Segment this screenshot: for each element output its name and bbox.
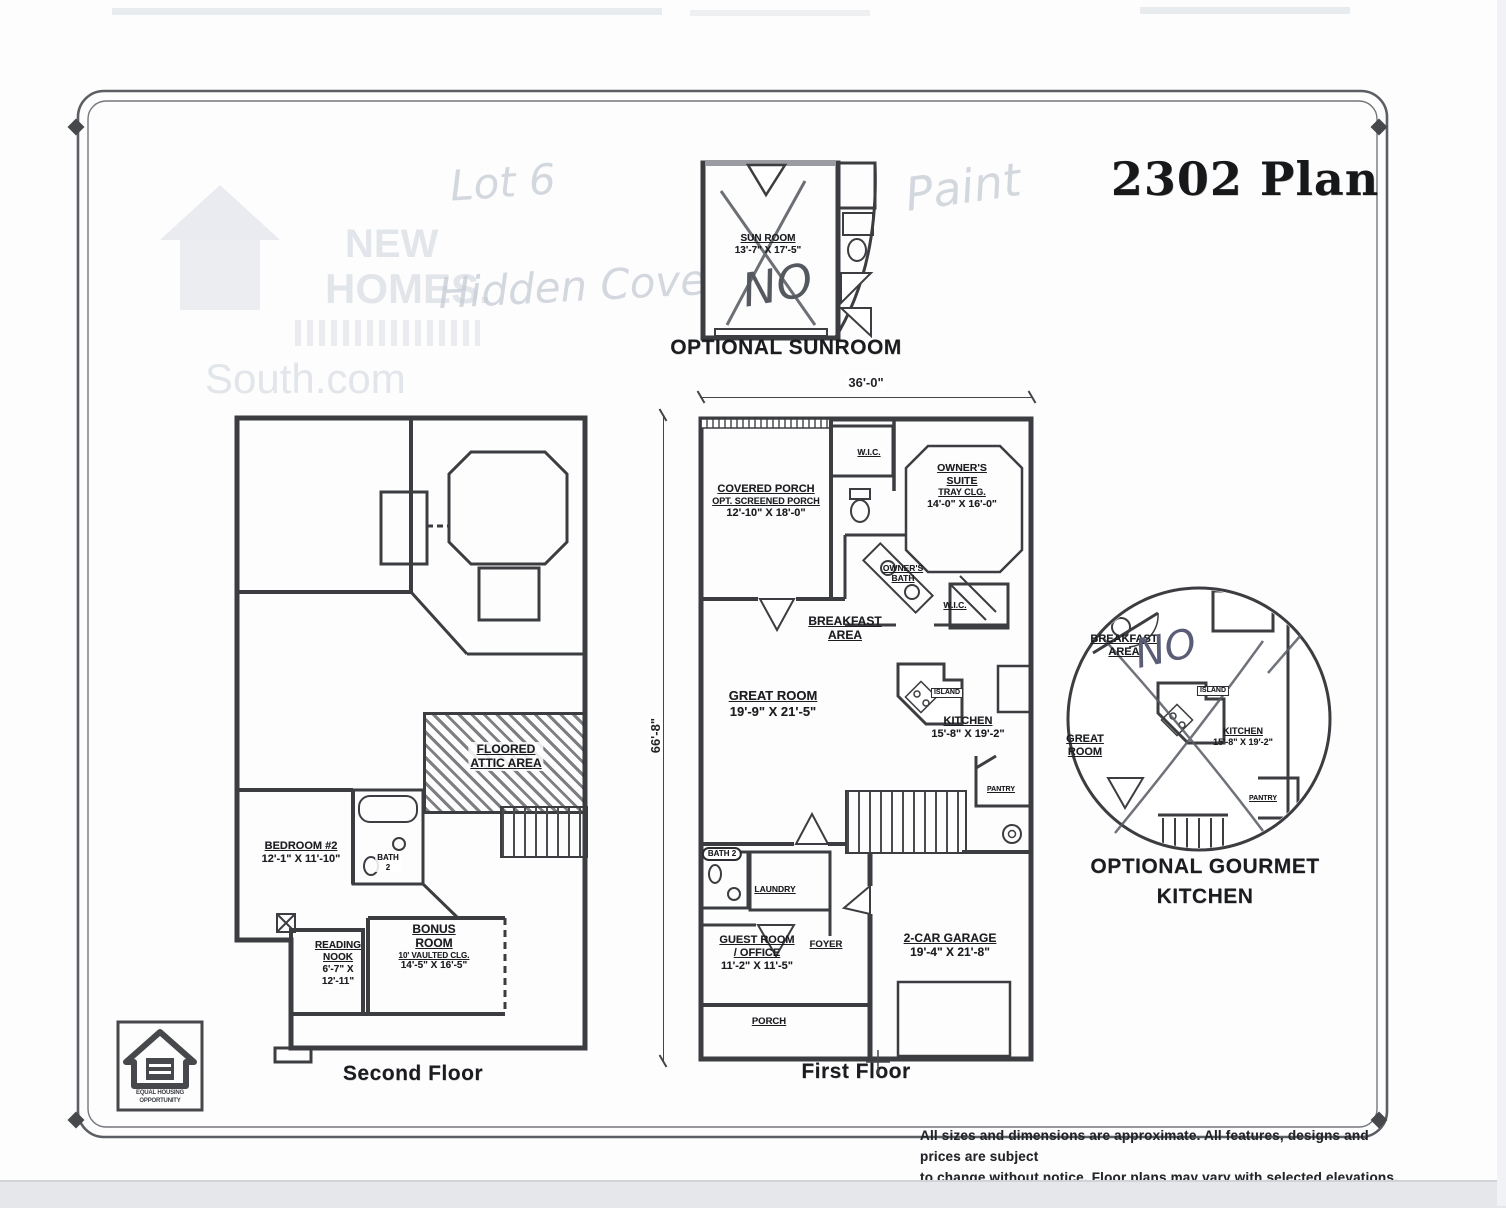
room-label-gk-kitchen: KITCHEN 15'-8" X 19'-2" — [1213, 726, 1273, 748]
dimension-line-height — [663, 416, 664, 1062]
door-swing-icon — [796, 814, 828, 844]
room-label-gk-great-room: GREAT ROOM — [1066, 733, 1104, 759]
room-label-garage: 2-CAR GARAGE 19'-4" X 21'-8" — [904, 931, 997, 960]
room-label-great-room: GREAT ROOM 19'-9" X 21'-5" — [729, 688, 818, 719]
caption-first-floor: First Floor — [801, 1060, 910, 1084]
room-label-reading-nook: READING NOOK 6'-7" X 12'-11" — [315, 940, 361, 988]
handwritten-lot-number: Lot 6 — [448, 154, 557, 210]
room-label-pantry: PANTRY — [987, 786, 1015, 794]
caption-gourmet-line1: OPTIONAL GOURMET — [1090, 855, 1319, 879]
survey-cross-icon — [866, 1050, 890, 1074]
garage-door — [898, 982, 1010, 1056]
dimension-line-width — [700, 397, 1032, 398]
room-label-covered-porch: COVERED PORCH OPT. SCREENED PORCH 12'-10… — [712, 483, 820, 520]
room-label-guest-room: GUEST ROOM / OFFICE 11'-2" X 11'-5" — [719, 934, 794, 974]
equal-housing-logo: EQUAL HOUSING OPPORTUNITY — [116, 1020, 204, 1112]
gourmet-kitchen-plan — [1063, 583, 1335, 855]
watermark-new: NEW — [345, 222, 438, 267]
room-label-porch: PORCH — [752, 1016, 786, 1027]
room-label-bedroom2: BEDROOM #2 12'-1" X 11'-10" — [262, 840, 341, 866]
roof-octagon — [449, 452, 567, 564]
stairs-first-floor — [845, 790, 967, 854]
room-label-gk-island: ISLAND — [1197, 686, 1229, 696]
sink-icon — [905, 585, 919, 599]
watermark-band — [295, 320, 480, 346]
door-swing-icon — [844, 886, 870, 914]
toilet-icon — [848, 239, 866, 261]
caption-second-floor: Second Floor — [343, 1062, 483, 1086]
watermark-url: South.com — [205, 355, 406, 403]
room-label-wic-hall: W.I.C. — [857, 447, 880, 457]
room-label-owners-suite: OWNER'S SUITE TRAY CLG. 14'-0" X 16'-0" — [927, 462, 997, 511]
toilet-icon — [850, 489, 870, 499]
room-label-wic-suite: W.I.C. — [943, 600, 966, 610]
page-edge-right — [1497, 0, 1506, 1206]
room-label-laundry: LAUNDRY — [754, 884, 795, 894]
water-heater-icon — [1003, 825, 1021, 843]
gourmet-kitchen-walls — [1063, 583, 1335, 855]
room-label-breakfast: BREAKFAST AREA — [808, 614, 881, 643]
room-label-bath2-ff: BATH 2 — [702, 847, 742, 861]
room-label-sunroom: SUN ROOM 13'-7" X 17'-5" — [735, 233, 802, 257]
sink-icon — [393, 838, 405, 850]
room-label-foyer: FOYER — [810, 939, 843, 950]
builder-watermark: NEW HOMES. South.com — [135, 160, 395, 410]
room-label-gk-pantry: PANTRY — [1249, 795, 1277, 803]
house-logo-icon — [180, 240, 260, 310]
stairs-second-floor — [500, 806, 588, 858]
door-swing-icon — [748, 165, 785, 195]
bathtub-icon — [359, 796, 417, 822]
room-label-owners-bath: OWNER'S BATH — [883, 563, 923, 583]
door-swing-icon — [760, 599, 794, 630]
room-label-bath2-sf: BATH 2 — [375, 853, 401, 872]
room-label-kitchen: KITCHEN 15'-8" X 19'-2" — [931, 715, 1004, 741]
equal-housing-text: EQUAL HOUSING OPPORTUNITY — [116, 1090, 204, 1106]
room-label-bonus-room: BONUS ROOM 10' VAULTED CLG. 14'-5" X 16'… — [399, 922, 470, 972]
caption-gourmet-line2: KITCHEN — [1157, 885, 1254, 909]
dimension-width-label: 36'-0" — [845, 375, 886, 390]
corner-diamond-icon — [68, 119, 85, 136]
house-logo-icon — [160, 185, 280, 240]
toilet-icon — [851, 500, 869, 522]
caption-optional-sunroom: OPTIONAL SUNROOM — [670, 336, 902, 360]
corner-diamond-icon — [1371, 119, 1388, 136]
toilet-icon — [709, 865, 721, 883]
page-edge-bar — [0, 1180, 1506, 1208]
page-title: 2302 Plan — [1095, 152, 1395, 206]
sink-icon — [728, 888, 740, 900]
dimension-height-label: 66'-8" — [648, 715, 663, 756]
room-label-attic: FLOORED ATTIC AREA — [468, 742, 543, 771]
room-label-island: ISLAND — [931, 688, 963, 698]
